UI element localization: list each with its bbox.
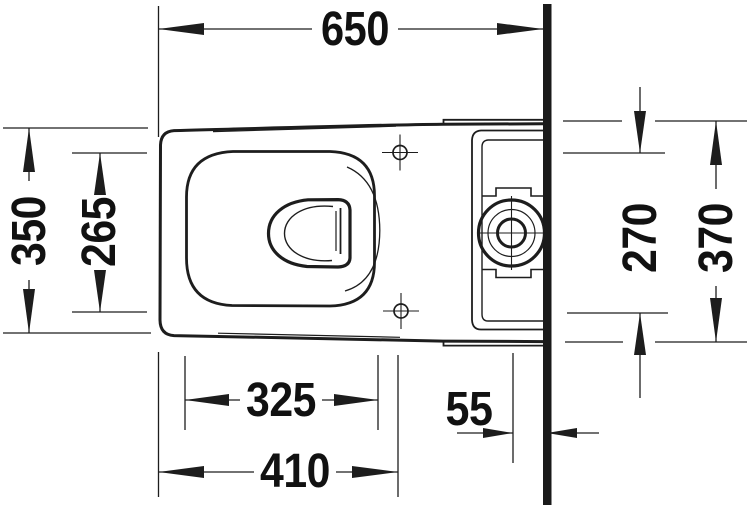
dim-650-arrow-left: [159, 23, 205, 35]
dim-seat-opening-depth: 325: [185, 355, 378, 430]
fixing-hole-top-crosshair: [382, 135, 418, 171]
flush-valve: [477, 196, 546, 270]
dim-350-arrow-bottom: [23, 289, 35, 333]
dim-270-label: 270: [614, 203, 667, 273]
bowl-sump: [269, 200, 351, 267]
dim-325-label: 325: [246, 374, 316, 427]
dim-265-label: 265: [73, 197, 126, 267]
bowl-sump-outline: [269, 200, 351, 267]
dim-270-arrow-bottom: [634, 313, 646, 355]
dim-370-arrow-top: [710, 121, 722, 165]
dim-350-arrow-top: [23, 128, 35, 172]
dim-350-label: 350: [3, 196, 56, 266]
toilet-plan-drawing: 650 350 265 325 410 55: [0, 0, 747, 505]
dim-325-arrow-left: [185, 394, 229, 406]
dim-55-label: 55: [446, 383, 493, 436]
dim-650-label: 650: [321, 3, 389, 56]
technical-drawing-canvas: 650 350 265 325 410 55: [0, 0, 747, 505]
wall-line: [543, 4, 552, 505]
cistern: [472, 131, 546, 330]
dim-tank-recess-width: 270: [563, 87, 668, 398]
dim-270-arrow-top: [634, 111, 646, 153]
seat-opening-outline: [187, 152, 375, 307]
dim-410-label: 410: [260, 445, 330, 498]
bowl-sump-inner-contour: [285, 206, 334, 261]
fixing-hole-top: [382, 135, 418, 171]
dim-overall-depth: 650: [159, 3, 544, 137]
dim-outlet-to-wall: 55: [446, 353, 600, 463]
dim-370-arrow-bottom: [710, 298, 722, 342]
dim-seat-opening-width: 265: [72, 153, 147, 312]
flush-valve-centerlines: [477, 196, 546, 270]
dim-410-arrow-left: [159, 466, 205, 478]
dim-650-arrow-right: [497, 23, 543, 35]
cistern-inner-outline: [482, 140, 543, 321]
valve-box-top: [482, 188, 543, 196]
dim-325-arrow-right: [334, 394, 378, 406]
dim-265-arrow-top: [94, 153, 106, 195]
dim-265-arrow-bottom: [94, 270, 106, 312]
dim-410-arrow-right: [352, 466, 398, 478]
fixing-hole-bottom-crosshair: [383, 293, 419, 329]
dim-370-label: 370: [690, 203, 743, 273]
fixing-hole-bottom: [383, 293, 419, 329]
valve-box-bottom: [482, 270, 543, 278]
